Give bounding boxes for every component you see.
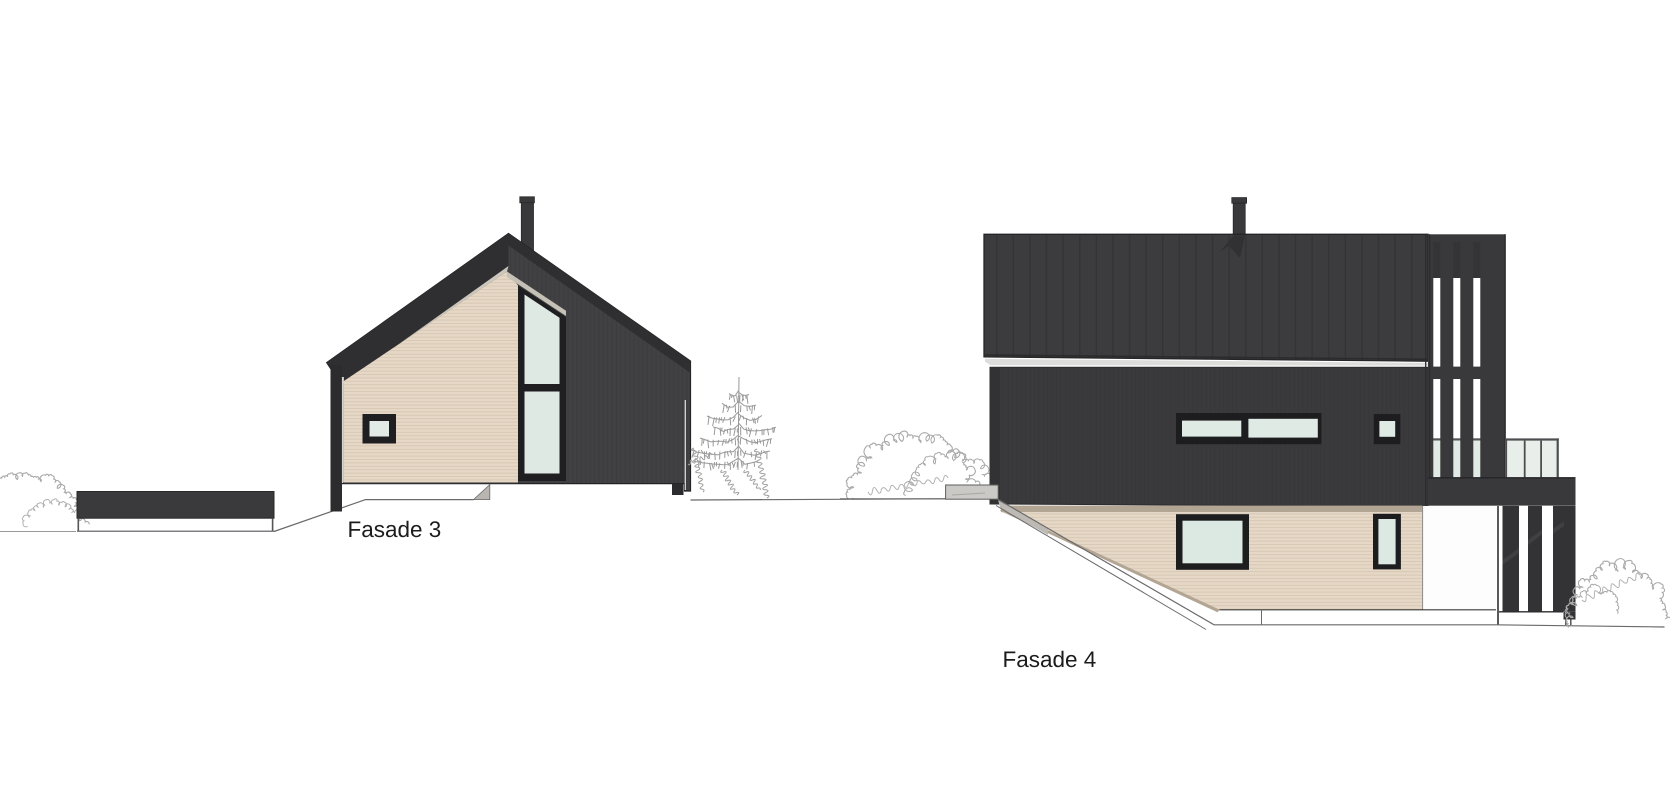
svg-text:Fasade 3: Fasade 3 bbox=[348, 517, 442, 542]
svg-text:Fasade 4: Fasade 4 bbox=[1003, 647, 1097, 672]
